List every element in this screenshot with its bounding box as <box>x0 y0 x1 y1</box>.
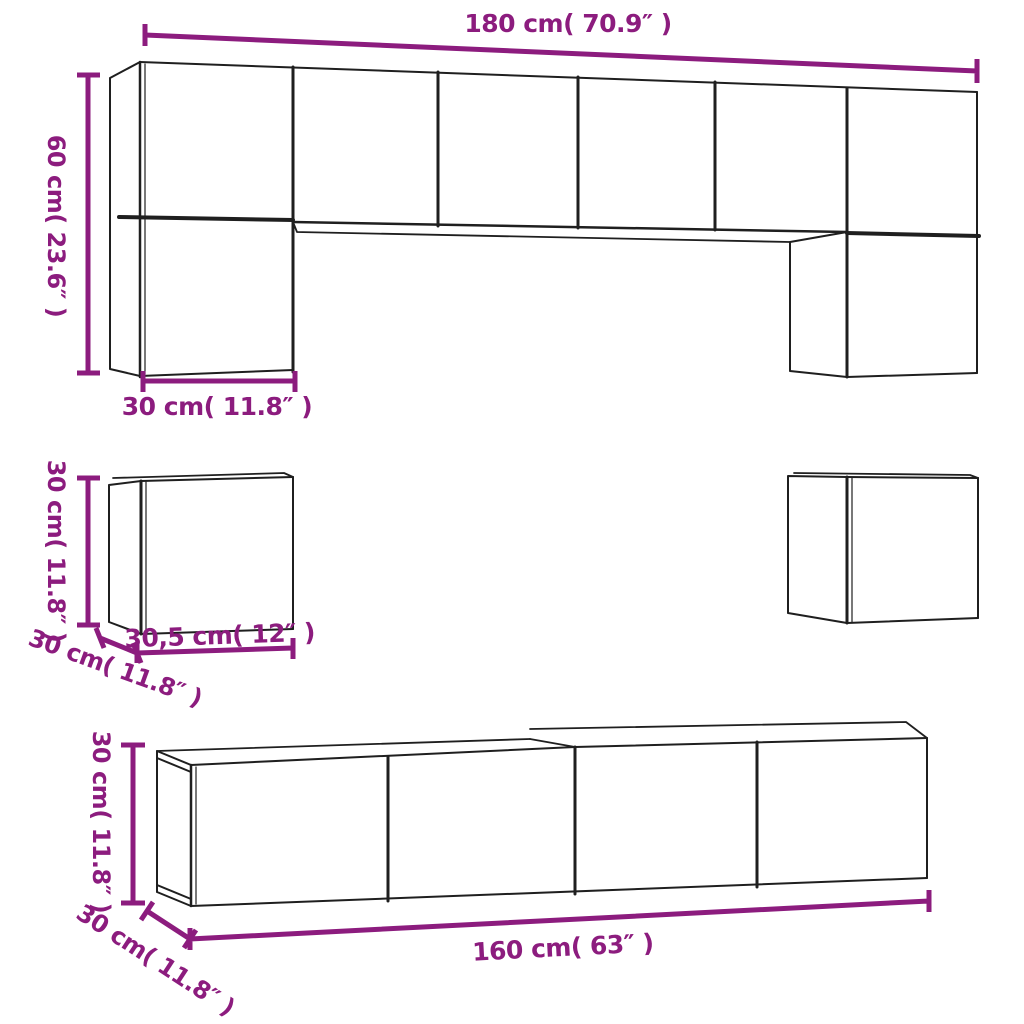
cube-cabinet-right <box>788 473 978 623</box>
dimension-line-wall-height <box>77 75 100 373</box>
dimension-diagram: 180 cm( 70.9″ ) 60 cm( 23.6″ ) 30 cm( 11… <box>0 0 1024 1024</box>
tv-stand <box>157 722 927 906</box>
dimension-line-cube-height <box>77 478 100 625</box>
label-wall-unit-width: 180 cm( 70.9″ ) <box>464 9 671 38</box>
label-cube-height: 30 cm( 11.8″ ) <box>42 460 70 643</box>
wall-unit-top-row <box>140 62 977 242</box>
dimension-lines <box>77 24 977 950</box>
dimension-line-stand-height <box>121 745 145 903</box>
label-tv-stand-width: 160 cm( 63″ ) <box>471 928 654 966</box>
label-wall-unit-height: 60 cm( 23.6″ ) <box>42 135 70 318</box>
wall-unit-left-cabinet <box>110 62 293 377</box>
product-diagram-canvas: 180 cm( 70.9″ ) 60 cm( 23.6″ ) 30 cm( 11… <box>0 0 1024 1024</box>
label-wall-cabinet-width: 30 cm( 11.8″ ) <box>122 392 312 421</box>
furniture-outlines <box>109 62 979 906</box>
cube-cabinet-left <box>109 473 293 634</box>
label-tv-stand-height: 30 cm( 11.8″ ) <box>87 731 115 914</box>
